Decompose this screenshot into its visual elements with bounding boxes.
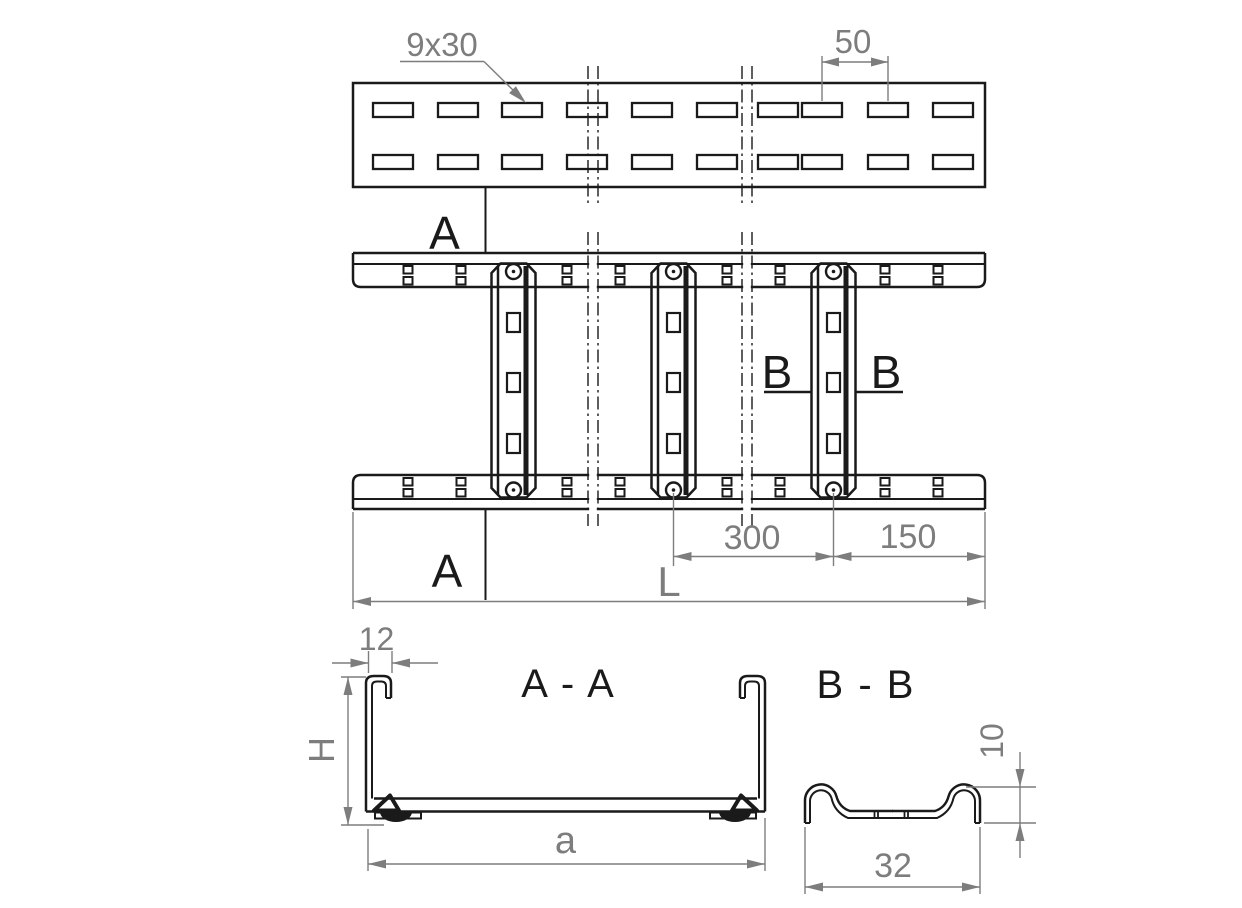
dim-arrow-icon — [353, 597, 371, 606]
dim-arrow-icon — [805, 883, 823, 892]
section-a-marks: A A — [429, 188, 485, 600]
section-aa-title: A - A — [521, 662, 616, 706]
dim-arrow-icon — [822, 58, 839, 67]
dim-arrow-icon — [1016, 823, 1025, 841]
top-view: 9x30 50 — [353, 23, 985, 204]
rung-spacing-label: 300 — [724, 519, 781, 557]
dim-arrow-icon — [962, 883, 980, 892]
rung-profile — [805, 784, 980, 823]
break-lines-top-view — [588, 66, 752, 204]
slot-size-label: 9x30 — [406, 26, 478, 63]
lip-width-label: 12 — [359, 621, 395, 657]
rung-width-label: 32 — [874, 847, 912, 885]
drawing-canvas: 9x30 50 — [0, 0, 1242, 908]
end-distance-dimension: 150 — [834, 512, 986, 609]
lip-width-dimension: 12 — [332, 621, 438, 673]
rung-height-label: 10 — [974, 723, 1010, 759]
section-bb-title: B - B — [817, 663, 916, 707]
section-aa: A - A 12 — [301, 621, 765, 871]
dim-arrow-icon — [967, 597, 985, 606]
inner-width-dimension: a — [368, 818, 765, 871]
dim-arrow-icon — [1016, 769, 1025, 787]
section-b-right-label: B — [871, 346, 902, 398]
section-a-top-label: A — [429, 207, 460, 259]
dim-arrow-icon — [344, 807, 353, 825]
total-length-label: L — [657, 558, 680, 605]
section-bb: B - B 10 32 — [805, 663, 1036, 894]
dim-arrow-icon — [967, 552, 985, 561]
cable-ladder-technical-drawing: 9x30 50 — [0, 0, 1242, 908]
dim-arrow-icon — [834, 552, 852, 561]
slot-pitch-label: 50 — [835, 23, 872, 60]
slot-size-callout: 9x30 — [400, 26, 526, 103]
section-b-left-label: B — [762, 346, 793, 398]
dim-arrow-icon — [392, 659, 410, 668]
dim-arrow-icon — [368, 860, 386, 869]
dim-arrow-icon — [344, 677, 353, 695]
dim-arrow-icon — [871, 58, 888, 67]
end-distance-label: 150 — [880, 518, 937, 556]
dim-arrow-icon — [747, 860, 765, 869]
plan-view: A A B B 300 150 — [353, 188, 985, 609]
height-label: H — [301, 737, 342, 763]
dim-arrow-icon — [351, 659, 369, 668]
rail-strip-outline — [353, 83, 985, 187]
dim-arrow-icon — [816, 552, 834, 561]
rung-spacing-dimension: 300 — [674, 493, 834, 566]
rung-width-dimension: 32 — [805, 827, 980, 894]
inner-width-label: a — [555, 820, 577, 862]
slot-pitch-dimension: 50 — [822, 23, 888, 101]
section-a-bottom-label: A — [432, 545, 463, 597]
